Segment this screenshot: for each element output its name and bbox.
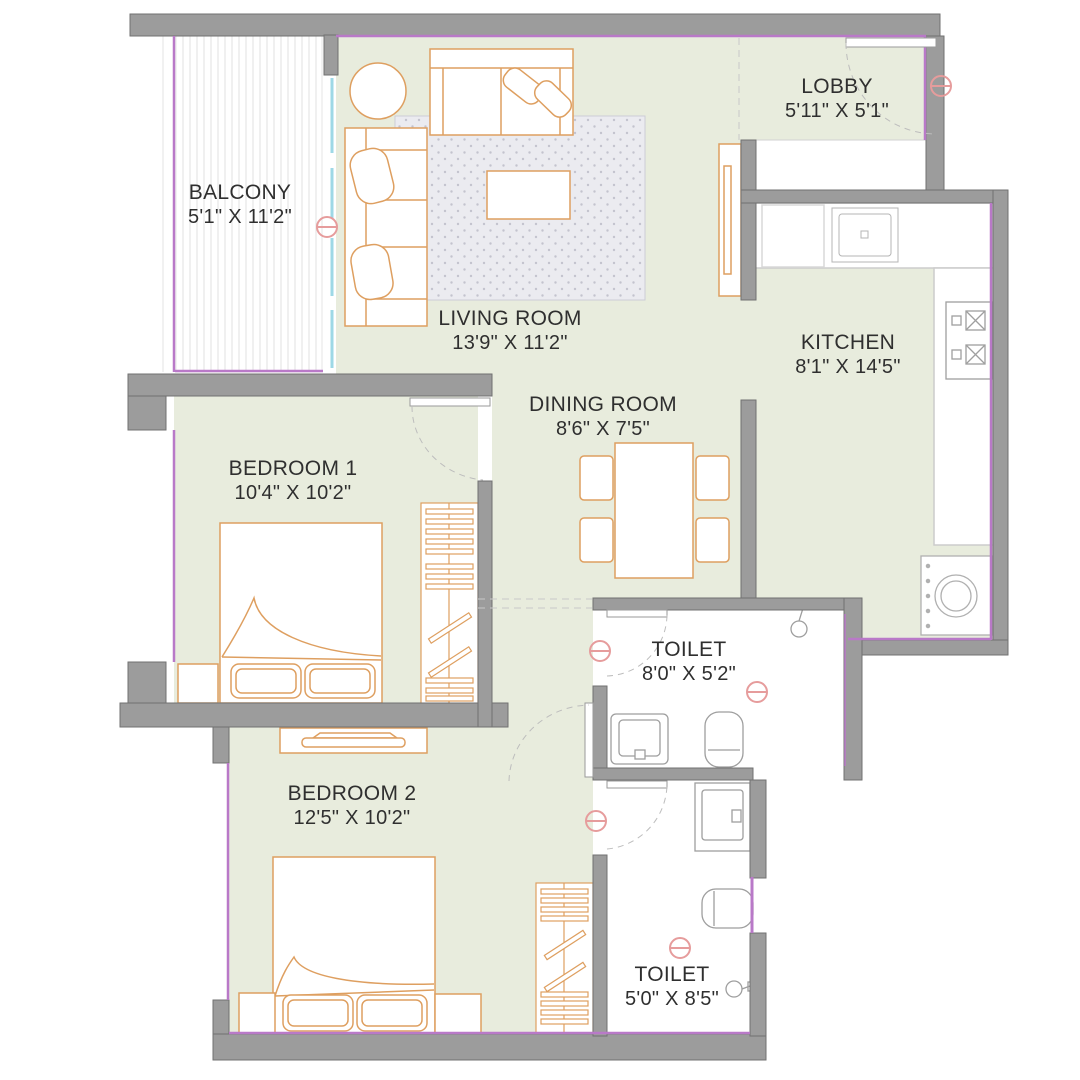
room-dims: 5'0" X 8'5" bbox=[625, 987, 719, 1012]
wall-dining-kitchen bbox=[741, 400, 756, 600]
wall-toilet1-left bbox=[593, 686, 607, 780]
three-seat-sofa-icon bbox=[345, 128, 427, 326]
bed2-icon bbox=[273, 857, 435, 1035]
room-label-toilet2: TOILET 5'0" X 8'5" bbox=[625, 962, 719, 1012]
room-dims: 8'1" X 14'5" bbox=[795, 355, 901, 380]
wardrobe1-icon bbox=[421, 503, 478, 704]
stove-icon bbox=[946, 302, 992, 379]
room-name: DINING ROOM bbox=[529, 392, 677, 417]
bedroom2-door-leaf bbox=[585, 703, 593, 777]
wall-kitchen-top bbox=[741, 190, 1008, 203]
room-dims: 5'11" X 5'1" bbox=[785, 99, 889, 124]
side-table-icon bbox=[178, 664, 218, 703]
fridge-icon bbox=[762, 205, 824, 267]
coffee-table-icon bbox=[487, 171, 570, 219]
room-name: LIVING ROOM bbox=[438, 306, 581, 331]
room-label-toilet1: TOILET 8'0" X 5'2" bbox=[642, 637, 736, 687]
round-table-icon bbox=[350, 63, 406, 119]
tv-unit-icon bbox=[719, 144, 741, 296]
wall-toilet1-top bbox=[593, 598, 846, 610]
room-name: TOILET bbox=[625, 962, 719, 987]
toilet2-washbasin-icon bbox=[695, 783, 750, 851]
bedroom1-door-leaf bbox=[410, 398, 490, 406]
wall-toilet2-right-top bbox=[750, 780, 766, 878]
wall-tv bbox=[741, 140, 756, 300]
two-seat-sofa-icon bbox=[430, 49, 575, 135]
room-dims: 13'9" X 11'2" bbox=[438, 331, 581, 356]
room-label-bedroom1: BEDROOM 1 10'4" X 10'2" bbox=[229, 456, 358, 506]
room-dims: 12'5" X 10'2" bbox=[288, 806, 417, 831]
floor-plan-drawing bbox=[0, 0, 1080, 1080]
wall-bedroom1-bedroom2 bbox=[120, 703, 508, 727]
wall-living-bedroom1 bbox=[128, 374, 492, 396]
toilet1-washbasin-icon bbox=[611, 714, 668, 764]
room-name: BEDROOM 1 bbox=[229, 456, 358, 481]
room-label-balcony: BALCONY 5'1" X 11'2" bbox=[188, 180, 292, 230]
toilet2-wc-icon bbox=[702, 889, 753, 928]
room-name: TOILET bbox=[642, 637, 736, 662]
toilet1-wc-icon bbox=[705, 712, 743, 767]
wall-toilet2-right-bottom bbox=[750, 933, 766, 1036]
wall-toilet2-left bbox=[593, 855, 607, 1036]
washing-machine-icon bbox=[921, 556, 992, 635]
room-name: BALCONY bbox=[188, 180, 292, 205]
dresser-icon bbox=[280, 728, 427, 753]
room-dims: 8'6" X 7'5" bbox=[529, 417, 677, 442]
lobby-niche bbox=[755, 140, 926, 190]
room-name: BEDROOM 2 bbox=[288, 781, 417, 806]
wall-top bbox=[130, 14, 940, 36]
room-name: KITCHEN bbox=[795, 330, 901, 355]
room-label-living: LIVING ROOM 13'9" X 11'2" bbox=[438, 306, 581, 356]
bed1-icon bbox=[220, 523, 382, 703]
toilet1-door-leaf bbox=[607, 610, 667, 617]
room-dims: 8'0" X 5'2" bbox=[642, 662, 736, 687]
room-name: LOBBY bbox=[785, 74, 889, 99]
kitchen-sink-icon bbox=[832, 208, 898, 262]
room-label-kitchen: KITCHEN 8'1" X 14'5" bbox=[795, 330, 901, 380]
floor-plan: BALCONY 5'1" X 11'2" LIVING ROOM 13'9" X… bbox=[0, 0, 1080, 1080]
room-label-bedroom2: BEDROOM 2 12'5" X 10'2" bbox=[288, 781, 417, 831]
wardrobe2-icon bbox=[536, 883, 593, 1033]
toilet2-door-leaf bbox=[607, 781, 667, 788]
wall-kitchen-right bbox=[993, 190, 1008, 655]
room-label-dining: DINING ROOM 8'6" X 7'5" bbox=[529, 392, 677, 442]
entrance-door-leaf bbox=[846, 38, 936, 47]
wall-balcony-living-stub bbox=[324, 35, 338, 75]
wall-toilet1-bottom bbox=[593, 768, 753, 780]
wall-lobby-right bbox=[926, 36, 944, 192]
room-label-lobby: LOBBY 5'11" X 5'1" bbox=[785, 74, 889, 124]
room-dims: 10'4" X 10'2" bbox=[229, 481, 358, 506]
wall-kitchen-bottom bbox=[846, 640, 1008, 655]
wall-toilet1-right bbox=[844, 598, 862, 780]
wall-bedroom1-right bbox=[478, 481, 492, 727]
room-dims: 5'1" X 11'2" bbox=[188, 205, 292, 230]
wall-bottom bbox=[213, 1034, 766, 1060]
